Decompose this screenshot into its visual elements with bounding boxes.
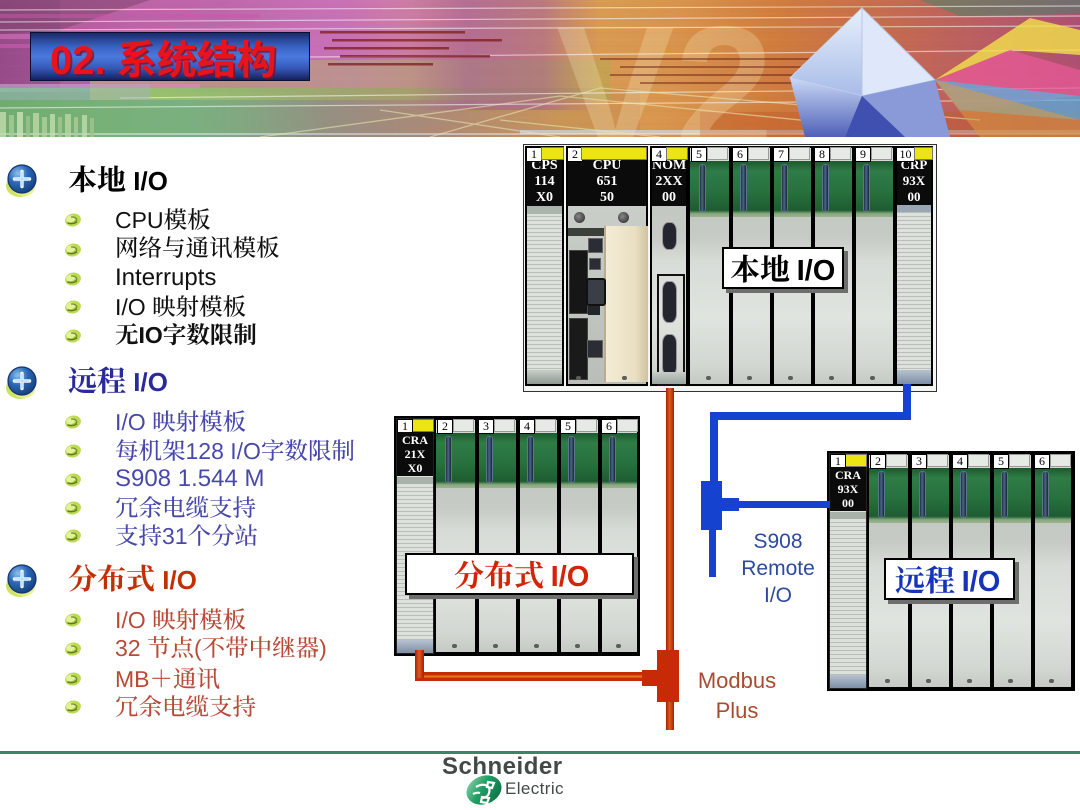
svg-text:V2: V2	[556, 0, 774, 137]
